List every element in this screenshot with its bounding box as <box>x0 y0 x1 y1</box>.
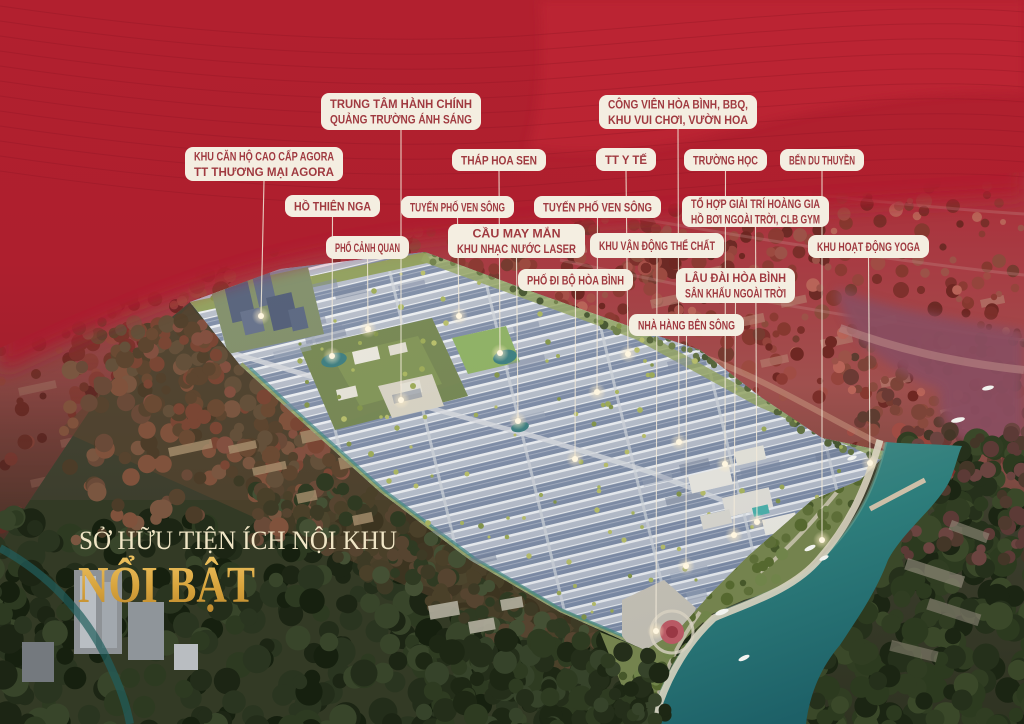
svg-text:HỒ THIÊN NGA: HỒ THIÊN NGA <box>294 198 371 213</box>
svg-text:TUYẾN PHỐ VEN SÔNG: TUYẾN PHỐ VEN SÔNG <box>543 199 652 214</box>
svg-text:QUẢNG TRƯỜNG ÁNH SÁNG: QUẢNG TRƯỜNG ÁNH SÁNG <box>330 112 472 127</box>
svg-text:THÁP HOA SEN: THÁP HOA SEN <box>461 152 537 167</box>
svg-text:CẦU MAY MẮN: CẦU MAY MẮN <box>472 226 560 241</box>
svg-text:SỞ HỮU TIỆN ÍCH NỘI KHU: SỞ HỮU TIỆN ÍCH NỘI KHU <box>79 526 397 555</box>
svg-text:TRUNG TÂM HÀNH CHÍNH: TRUNG TÂM HÀNH CHÍNH <box>330 96 472 111</box>
svg-text:TRƯỜNG HỌC: TRƯỜNG HỌC <box>693 152 758 167</box>
svg-text:HỒ BƠI NGOÀI TRỜI, CLB GYM: HỒ BƠI NGOÀI TRỜI, CLB GYM <box>691 212 820 227</box>
svg-text:LÂU ĐÀI HÒA BÌNH: LÂU ĐÀI HÒA BÌNH <box>685 270 786 285</box>
svg-text:BẾN DU THUYỀN: BẾN DU THUYỀN <box>789 152 855 167</box>
svg-text:PHỐ ĐI BỘ HÒA BÌNH: PHỐ ĐI BỘ HÒA BÌNH <box>527 272 624 287</box>
svg-text:NHÀ HÀNG BÊN SÔNG: NHÀ HÀNG BÊN SÔNG <box>638 317 735 332</box>
svg-text:CÔNG VIÊN HÒA BÌNH, BBQ,: CÔNG VIÊN HÒA BÌNH, BBQ, <box>608 97 748 112</box>
svg-text:KHU VẬN ĐỘNG THỂ CHẤT: KHU VẬN ĐỘNG THỂ CHẤT <box>599 238 715 253</box>
svg-text:TỔ HỢP GIẢI TRÍ HOÀNG GIA: TỔ HỢP GIẢI TRÍ HOÀNG GIA <box>691 196 820 211</box>
svg-text:KHU CĂN HỘ CAO CẤP AGORA: KHU CĂN HỘ CAO CẤP AGORA <box>194 149 334 164</box>
svg-text:TT Y TẾ: TT Y TẾ <box>605 152 647 167</box>
svg-text:KHU HOẠT ĐỘNG YOGA: KHU HOẠT ĐỘNG YOGA <box>817 239 920 254</box>
svg-text:SÂN KHẤU NGOÀI TRỜI: SÂN KHẤU NGOÀI TRỜI <box>685 286 786 301</box>
svg-text:NỔI BẬT: NỔI BẬT <box>78 555 255 614</box>
svg-text:TT THƯƠNG MẠI AGORA: TT THƯƠNG MẠI AGORA <box>194 165 334 179</box>
svg-text:KHU NHẠC NƯỚC LASER: KHU NHẠC NƯỚC LASER <box>457 241 576 256</box>
svg-text:PHỐ CẢNH QUAN: PHỐ CẢNH QUAN <box>335 240 400 255</box>
svg-text:KHU VUI CHƠI, VƯỜN HOA: KHU VUI CHƠI, VƯỜN HOA <box>608 112 748 127</box>
svg-text:TUYẾN PHỐ VEN SÔNG: TUYẾN PHỐ VEN SÔNG <box>410 199 505 214</box>
